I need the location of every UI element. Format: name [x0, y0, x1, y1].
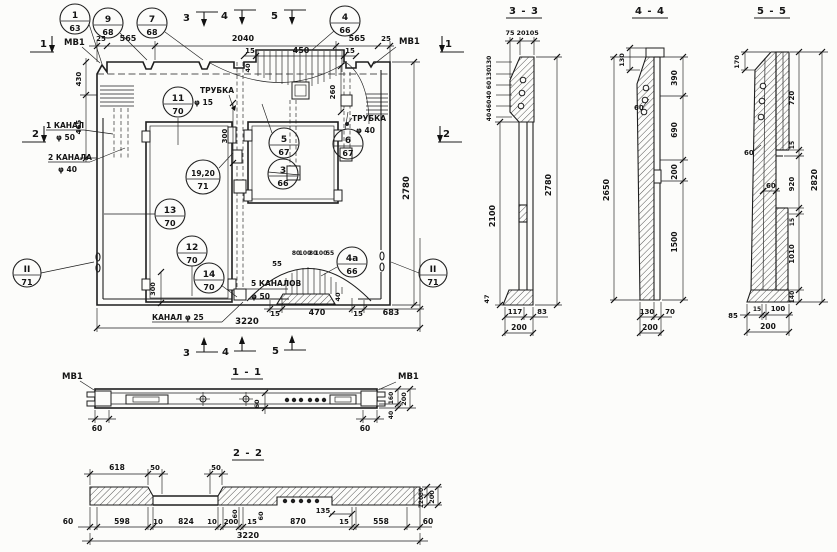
dim-label: 430	[75, 72, 83, 87]
callout-number: 7	[149, 15, 155, 25]
callout-sheet: 66	[277, 179, 289, 188]
dim-label: 60	[766, 182, 776, 190]
dim-label: 130	[486, 56, 493, 69]
dim-label: 2040	[232, 34, 255, 43]
channel-block	[277, 294, 335, 304]
dim-label: 598	[114, 517, 130, 526]
dim-label: 558	[373, 517, 389, 526]
callout-sheet: 70	[164, 219, 176, 228]
dim-label: 683	[383, 308, 400, 317]
dim-label: 720	[788, 91, 796, 106]
dim-label: 200	[511, 323, 527, 332]
dim-label: 200	[642, 323, 658, 332]
dim-label: 80	[418, 488, 425, 496]
callout-sheet: 71	[427, 278, 439, 287]
callout-13-70: 13 70	[155, 199, 185, 229]
section-1-1: 1 - 1 МВ1 МВ1 60 60 60 160 40 200	[62, 367, 419, 433]
callout-number: 6	[345, 136, 351, 146]
mark-label-mv1: МВ1	[399, 37, 420, 47]
section-4-4: 4 - 4 130 60 2650 390 690 200 1500 130 7…	[602, 6, 688, 336]
hatch-details	[100, 51, 388, 304]
dim-label: 300	[221, 129, 229, 144]
marker-number: 3	[183, 348, 191, 359]
note-f15: φ 15	[194, 98, 213, 107]
dim-label: 60	[257, 511, 265, 521]
note-f50: φ 50	[56, 133, 75, 142]
callout-12-70: 12 70	[177, 236, 207, 266]
dim-label: 200	[428, 490, 436, 504]
callout-sheet: 66	[346, 267, 358, 276]
dim-label: 130	[618, 53, 626, 67]
dim-label: 1500	[670, 232, 679, 253]
callout-sheet: 66	[339, 26, 351, 35]
dim-label: 15	[247, 518, 257, 526]
marker-number: 4	[222, 347, 230, 358]
note-trubka-15: ТРУБКА	[200, 86, 234, 95]
callout-number: 4	[342, 13, 348, 23]
dim-label: 140	[789, 291, 796, 304]
dim-label: 3220	[237, 531, 260, 540]
callout-number: II	[24, 265, 31, 275]
dim-label: 2780	[402, 176, 412, 200]
dim-label: 2100	[488, 204, 497, 227]
dim-label: 100	[771, 305, 786, 313]
dim-label: 565	[349, 34, 366, 43]
callout-number: 5	[281, 135, 287, 145]
dim-label: 3220	[235, 317, 259, 327]
callout-number: 14	[203, 270, 216, 280]
filler-block	[519, 205, 527, 222]
callout-number: 3	[280, 166, 286, 176]
marker-number: 1	[445, 39, 453, 50]
dim-label: 300	[149, 282, 157, 296]
edge-anchor-bump	[380, 263, 384, 271]
dim-label: 70	[665, 308, 675, 316]
dim-label: 105	[525, 29, 539, 37]
dim-label: 15	[339, 518, 349, 526]
dim-label: 2820	[810, 168, 819, 191]
recess-dots	[283, 499, 319, 503]
mark-label-mv1: МВ1	[62, 372, 83, 382]
dim-label: 60	[423, 517, 433, 526]
dim-label: 390	[670, 70, 679, 86]
dim-label: 40	[244, 63, 252, 73]
right-rib	[218, 487, 420, 505]
drawing-sheet: 25 565 2040 565 25 15 450 15 40 430 465 …	[0, 0, 837, 552]
marker-number: 5	[271, 11, 279, 22]
callout-II-71-right: II 71	[419, 259, 447, 287]
note-kanal2: 2 КАНАЛА	[48, 153, 92, 162]
callout-sheet: 68	[146, 28, 158, 37]
marker-number: 2	[443, 129, 451, 140]
note-kanal1: 1 КАНАЛ	[46, 121, 84, 130]
opening-left	[142, 122, 236, 302]
dim-label: 10	[207, 518, 217, 526]
callout-4-66: 4 66	[330, 6, 360, 36]
dim-label: 50	[150, 464, 160, 472]
note-kanal5: 5 КАНАЛОВ	[251, 279, 301, 288]
callout-number: 13	[164, 206, 177, 216]
strand-dots	[285, 398, 326, 402]
dim-label: 15	[789, 218, 796, 226]
dim-label: 40	[388, 411, 395, 419]
marker-5-bottom: 5	[272, 335, 306, 357]
note-trubka-40: ТРУБКА	[352, 114, 386, 123]
callout-sheet: 70	[172, 107, 184, 116]
callout-II-71-left: II 71	[13, 259, 41, 287]
callout-sheet: 70	[186, 256, 198, 265]
marker-number: 4	[221, 11, 229, 22]
dim-label: 40	[334, 292, 342, 302]
section-2-2: 2 - 2 618 50 50 60 60 135 60 598 10 824 …	[63, 448, 442, 545]
mark-label-mv1: МВ1	[398, 372, 419, 382]
dim-label: 824	[178, 517, 194, 526]
dim-label: 470	[309, 308, 326, 317]
dim-label: 1010	[788, 244, 796, 264]
dim-label: 260	[329, 85, 337, 100]
callout-4a-66: 4а 66	[337, 247, 367, 277]
dim-label: 40	[486, 113, 493, 121]
dim-label: 450	[293, 46, 310, 55]
dim-label: 2650	[602, 178, 611, 201]
edge-detail	[654, 170, 661, 183]
dim-label: 130	[640, 308, 655, 316]
marker-number: 1	[40, 39, 48, 50]
dim-label: 15	[245, 47, 255, 55]
callout-sheet: 68	[102, 28, 114, 37]
marker-3-top: 3	[183, 12, 218, 27]
dim-label: 200	[400, 392, 408, 406]
callout-11-70: 11 70	[163, 87, 193, 117]
edge-anchor-bump	[380, 252, 384, 260]
dim-label: 60	[63, 517, 73, 526]
dim-label: 40	[486, 91, 493, 99]
dim-label: 2780	[544, 173, 553, 196]
dim-label: 55	[272, 260, 282, 268]
callout-1920-71: 19,20 71	[186, 160, 220, 194]
callout-number: 4а	[346, 254, 358, 264]
dim-label: 690	[670, 122, 679, 138]
dim-label: 60	[360, 424, 370, 433]
callout-14-70: 14 70	[194, 263, 224, 293]
section-title: 2 - 2	[233, 448, 263, 459]
section-foot	[503, 290, 533, 305]
dim-label: 130	[486, 68, 493, 81]
marker-number: 3	[183, 13, 191, 24]
dim-label: 83	[537, 308, 547, 316]
left-rib	[90, 487, 153, 505]
note-f50: φ 50	[251, 292, 270, 301]
callout-sheet: 67	[278, 148, 289, 157]
lower-plate	[776, 208, 788, 290]
marker-4-bottom: 4	[222, 336, 256, 358]
top-key-hatch	[210, 51, 345, 87]
section-title: 3 - 3	[509, 6, 539, 17]
dim-label: 160	[388, 392, 395, 405]
callout-7-68: 7 68	[137, 8, 167, 38]
marker-5-top: 5	[271, 10, 306, 25]
dim-label: 75	[505, 29, 515, 37]
note-f40: φ 40	[58, 165, 77, 174]
marker-3-bottom: 3	[183, 337, 218, 359]
callout-number: 11	[172, 94, 185, 104]
dim-label: 15	[753, 306, 761, 313]
dim-label: 50	[211, 464, 221, 472]
dim-label: 870	[290, 517, 306, 526]
dim-label: 60	[486, 81, 493, 89]
dim-label: 200	[670, 164, 679, 180]
callout-sheet: 70	[203, 283, 215, 292]
dim-label: 60	[253, 399, 261, 409]
dim-label: 117	[508, 308, 523, 316]
dim-label: 10	[153, 518, 163, 526]
dim-label: 25	[381, 35, 391, 43]
dim-label: 85	[728, 312, 738, 320]
callout-number: 1	[72, 11, 78, 21]
marker-2-right: 2	[437, 126, 462, 143]
section-title: 4 - 4	[635, 6, 665, 17]
callout-number: 9	[105, 15, 111, 25]
embedded-channel	[126, 395, 168, 404]
callout-1-63: 1 63	[60, 4, 90, 34]
embedded-channel	[330, 395, 356, 404]
section-title: 5 - 5	[757, 6, 787, 17]
main-plan-view: 25 565 2040 565 25 15 450 15 40 430 465 …	[13, 4, 464, 359]
dim-label: 200	[760, 322, 776, 331]
section-title: 1 - 1	[232, 367, 262, 378]
end-anchor-left	[87, 391, 111, 406]
marker-4-top: 4	[221, 10, 256, 25]
section-cap	[646, 48, 664, 57]
callout-number: II	[430, 265, 437, 275]
dim-label: 55	[326, 250, 334, 257]
section-body-top	[510, 57, 534, 122]
callout-9-68: 9 68	[93, 8, 123, 38]
dim-label: 618	[109, 463, 125, 472]
top-left-band	[100, 86, 134, 158]
callout-sheet: 71	[21, 278, 33, 287]
panel-working-drawing: 25 565 2040 565 25 15 450 15 40 430 465 …	[0, 0, 837, 552]
dim-label: 120	[418, 496, 425, 509]
dim-label: 15	[345, 47, 355, 55]
dim-label: 15	[789, 141, 796, 149]
section-foot	[747, 290, 789, 302]
tube-block	[292, 82, 309, 99]
marker-1-left: 1	[30, 36, 55, 53]
callout-number: 19,20	[191, 169, 215, 178]
marker-number: 5	[272, 346, 280, 357]
dim-label: 200	[224, 518, 239, 526]
note-kanal25: КАНАЛ φ 25	[152, 313, 204, 322]
dim-label: 135	[316, 507, 331, 515]
dim-label: 170	[733, 55, 741, 69]
callout-sheet: 71	[197, 182, 209, 191]
dim-label: 60	[92, 424, 102, 433]
dim-label: 15	[353, 310, 363, 318]
marker-2-left: 2	[22, 126, 47, 143]
mark-label-mv1: МВ1	[64, 38, 85, 48]
dim-label: 47	[483, 294, 491, 303]
dim-label: 920	[788, 177, 796, 192]
dim-label: 15	[270, 310, 280, 318]
callout-number: 12	[186, 243, 199, 253]
callout-sheet: 63	[69, 24, 80, 33]
section-5-5: 5 - 5 170 60 60 720 15 920 15 1010 140 2…	[728, 6, 828, 336]
callout-5-67: 5 67	[269, 128, 299, 158]
marker-number: 2	[32, 129, 40, 140]
dim-label: 60	[634, 104, 644, 112]
dim-label: 460	[486, 100, 493, 113]
section-3-3: 3 - 3 75 20 105 130 130 60 40 460 40 210…	[483, 6, 562, 336]
dim-label: 60	[744, 149, 754, 157]
marker-1-right: 1	[439, 36, 464, 53]
callout-sheet: 67	[342, 149, 353, 158]
section-body	[637, 57, 654, 300]
